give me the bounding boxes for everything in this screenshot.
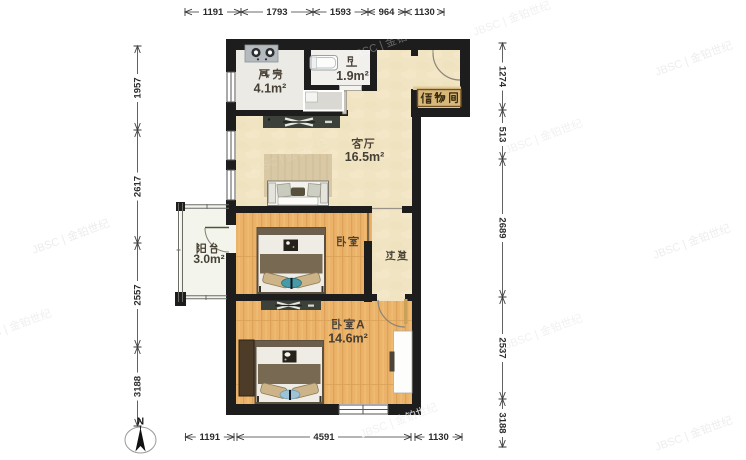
svg-text:1957: 1957 bbox=[133, 77, 144, 98]
svg-text:14.6m²: 14.6m² bbox=[328, 332, 368, 346]
svg-text:A: A bbox=[356, 318, 365, 332]
svg-text:1130: 1130 bbox=[428, 432, 449, 443]
svg-text:3188: 3188 bbox=[133, 376, 144, 397]
svg-text:3188: 3188 bbox=[496, 412, 507, 433]
svg-text:1191: 1191 bbox=[199, 432, 220, 443]
svg-text:964: 964 bbox=[379, 7, 396, 18]
svg-text:1593: 1593 bbox=[330, 7, 351, 18]
svg-text:1130: 1130 bbox=[414, 7, 435, 18]
svg-text:1191: 1191 bbox=[203, 7, 224, 18]
svg-text:4.1m²: 4.1m² bbox=[254, 82, 287, 96]
svg-text:3.0m²: 3.0m² bbox=[193, 252, 224, 266]
svg-text:16.5m²: 16.5m² bbox=[345, 150, 385, 164]
svg-text:1793: 1793 bbox=[266, 7, 287, 18]
svg-text:4591: 4591 bbox=[313, 432, 335, 443]
svg-text:2557: 2557 bbox=[133, 284, 144, 305]
svg-text:2617: 2617 bbox=[133, 176, 144, 197]
svg-text:1274: 1274 bbox=[496, 66, 507, 88]
svg-text:513: 513 bbox=[496, 127, 507, 143]
svg-text:N: N bbox=[137, 417, 144, 428]
svg-text:2689: 2689 bbox=[496, 217, 507, 238]
svg-text:1.9m²: 1.9m² bbox=[336, 69, 369, 83]
